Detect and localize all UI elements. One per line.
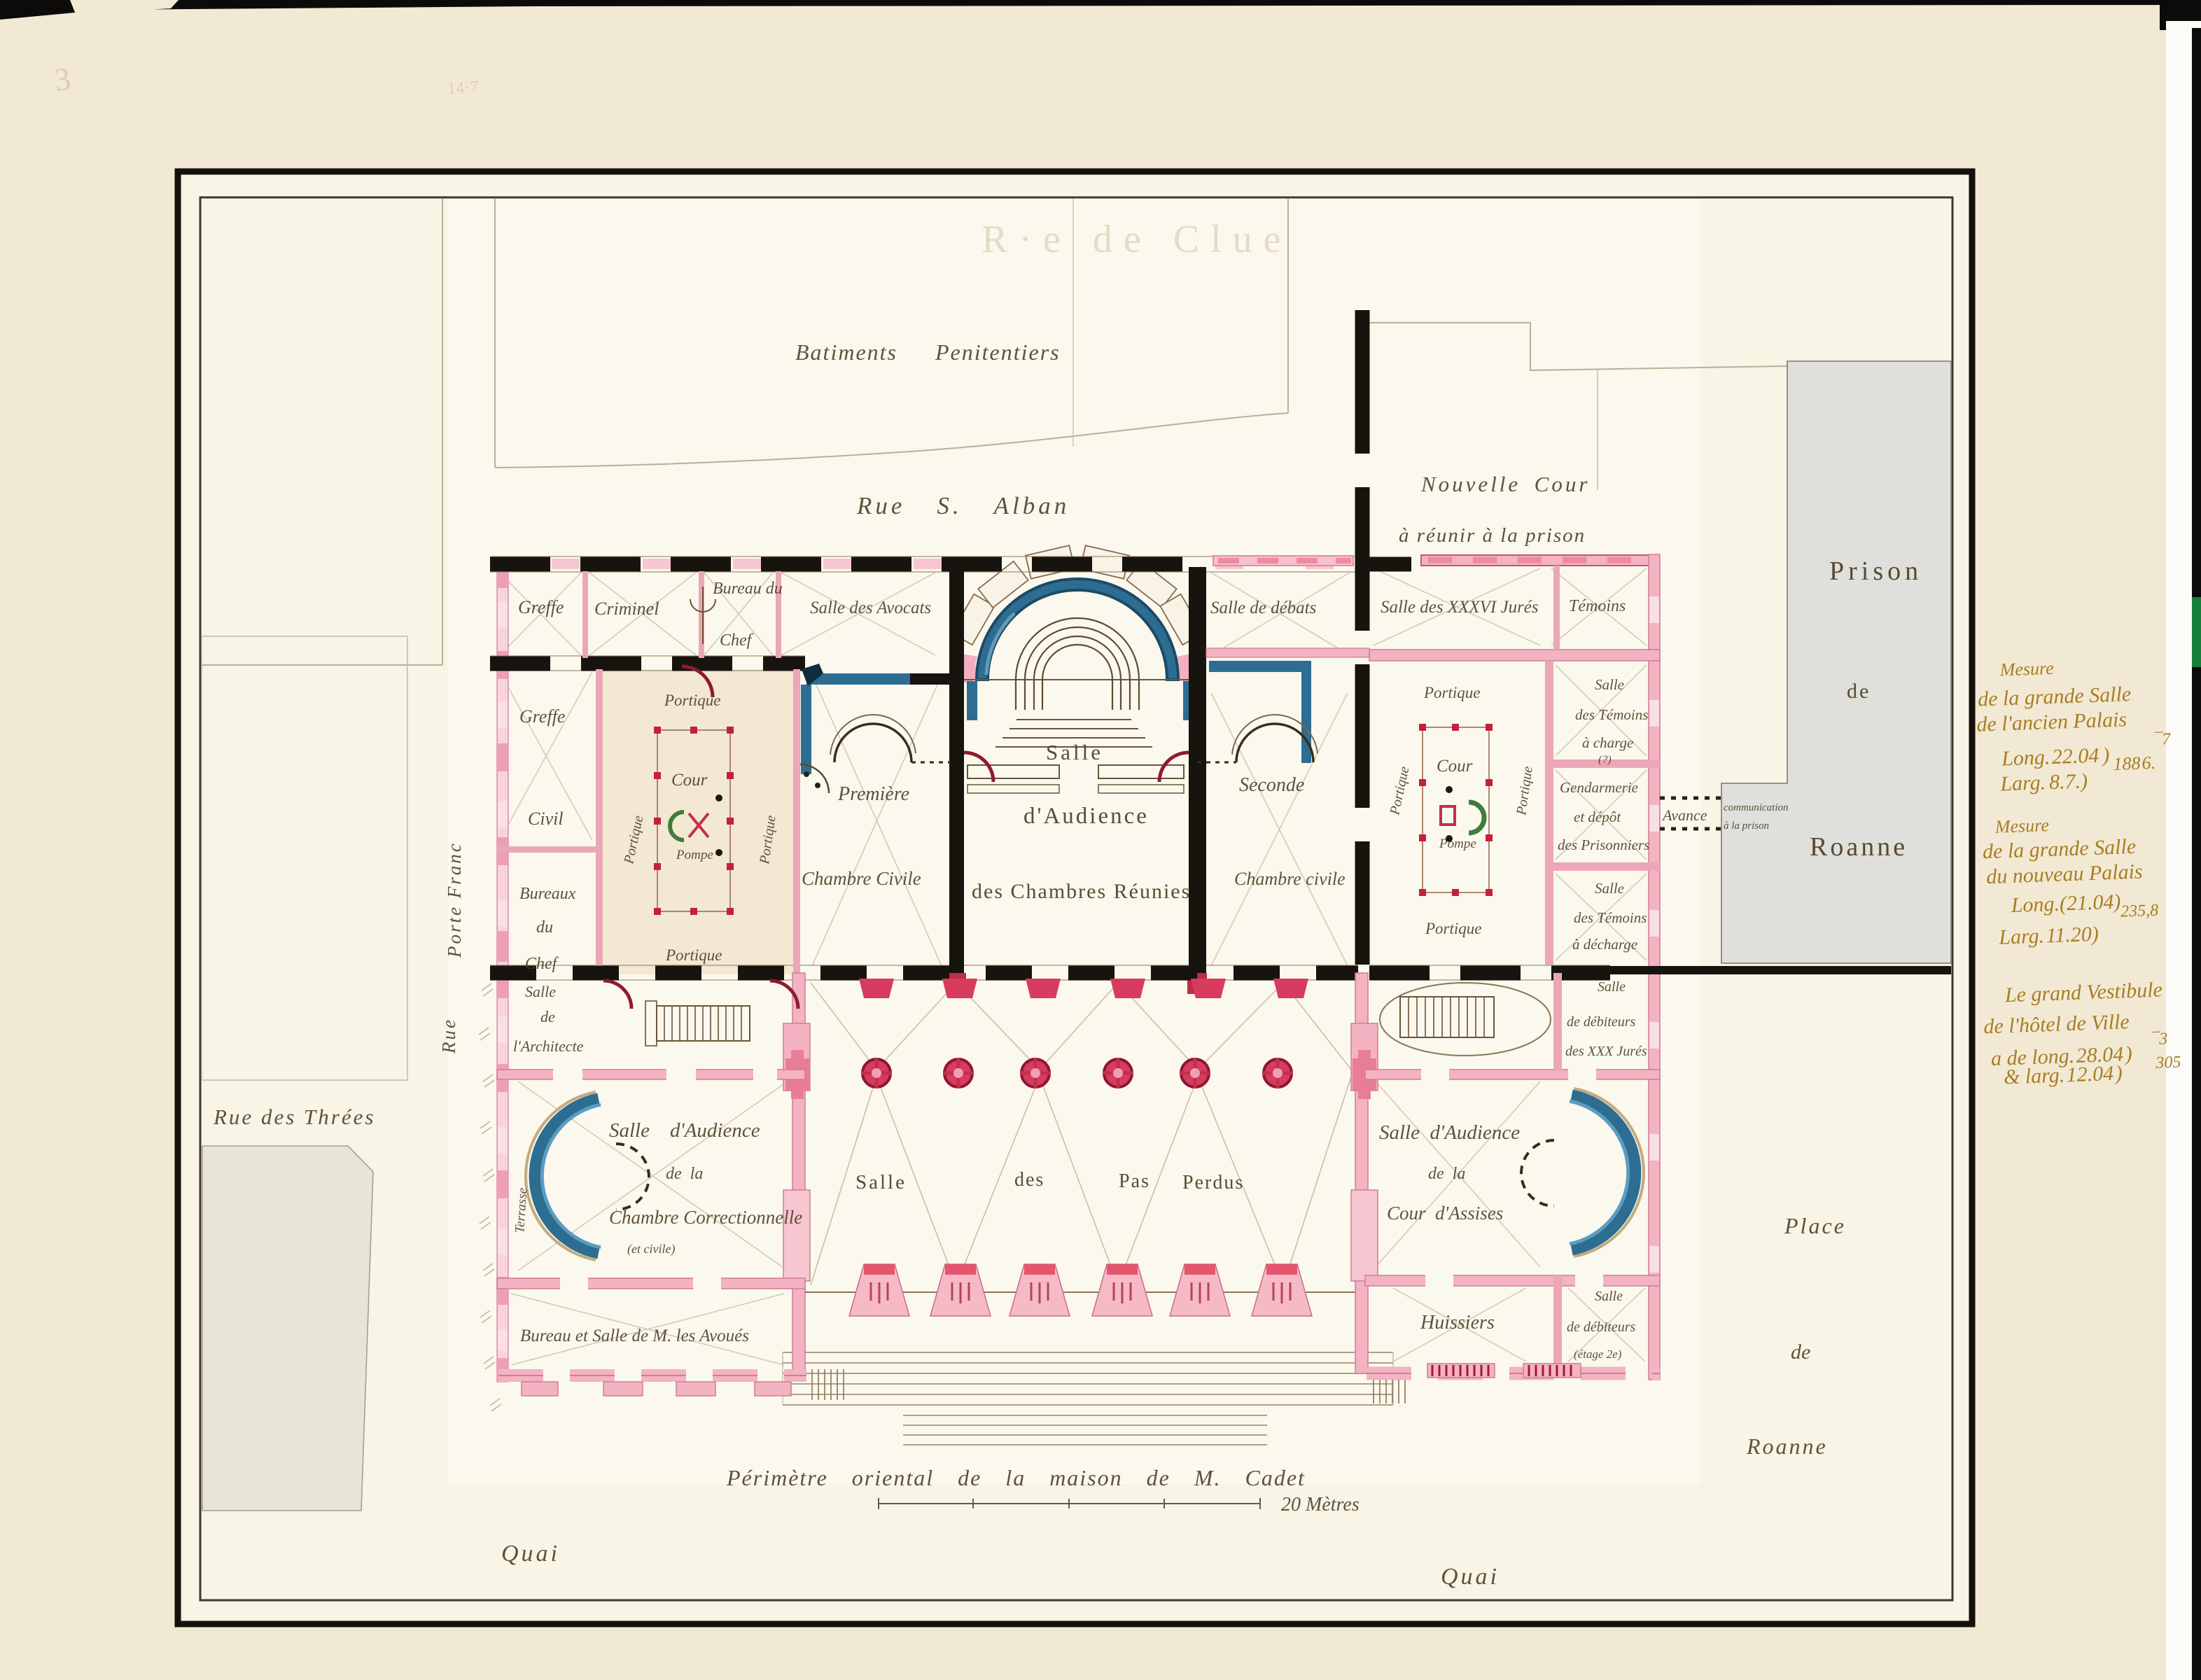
svg-text:Salle de débats: Salle de débats: [1210, 598, 1316, 617]
svg-text:188 6.: 188 6.: [2113, 752, 2156, 774]
svg-text:Seconde: Seconde: [1239, 774, 1304, 796]
svg-text:Première: Première: [837, 783, 909, 805]
svg-text:R·e de Clue: R·e de Clue: [981, 218, 1292, 261]
svg-text:Chef: Chef: [720, 631, 754, 650]
svg-text:Salle: Salle: [1046, 740, 1103, 764]
svg-text:¯7: ¯7: [2153, 730, 2172, 749]
svg-text:Cour d'Assises: Cour d'Assises: [1387, 1203, 1503, 1224]
svg-text:Rue des Thrées: Rue des Thrées: [213, 1105, 375, 1129]
svg-text:Cour: Cour: [671, 771, 708, 790]
svg-text:de: de: [1847, 680, 1871, 703]
svg-text:(?): (?): [1598, 754, 1612, 766]
svg-text:Salle: Salle: [525, 983, 556, 1000]
svg-text:et dépôt: et dépôt: [1574, 808, 1621, 825]
svg-text:Pas: Pas: [1119, 1170, 1150, 1192]
svg-text:de: de: [540, 1008, 555, 1025]
svg-text:Huissiers: Huissiers: [1420, 1312, 1495, 1333]
svg-text:Salle: Salle: [1595, 880, 1624, 897]
svg-text:Chambre civile: Chambre civile: [1234, 869, 1346, 889]
svg-text:Quai: Quai: [1441, 1564, 1500, 1590]
svg-text:Chambre Correctionnelle: Chambre Correctionnelle: [609, 1207, 802, 1228]
svg-text:Larg. 8.7.): Larg. 8.7.): [1999, 769, 2088, 795]
svg-text:(et civile): (et civile): [627, 1242, 675, 1256]
svg-text:l'Architecte: l'Architecte: [513, 1037, 584, 1055]
svg-text:Batiments Penitentiers: Batiments Penitentiers: [795, 339, 1061, 365]
svg-text:Bureau et Salle de M. les Avou: Bureau et Salle de M. les Avoués: [520, 1326, 749, 1345]
svg-text:Pompe: Pompe: [1439, 836, 1476, 851]
svg-text:Pompe: Pompe: [676, 848, 713, 862]
svg-text:Salle: Salle: [855, 1171, 907, 1193]
svg-text:des Chambres Réunies: des Chambres Réunies: [972, 880, 1191, 903]
svg-text:Long.(21.04): Long.(21.04): [2010, 890, 2121, 917]
svg-text:de: de: [1791, 1340, 1810, 1364]
svg-text:des: des: [1014, 1169, 1044, 1191]
svg-text:Salle d'Audience: Salle d'Audience: [1379, 1121, 1520, 1144]
svg-text:Salle des Avocats: Salle des Avocats: [810, 598, 931, 617]
svg-text:Greffe: Greffe: [519, 706, 565, 727]
svg-text:de la: de la: [666, 1165, 703, 1183]
svg-text:Chef: Chef: [525, 955, 559, 973]
svg-text:Roanne: Roanne: [1746, 1434, 1828, 1459]
svg-text:à réunir à la prison: à réunir à la prison: [1399, 524, 1586, 547]
svg-text:de débiteurs: de débiteurs: [1567, 1014, 1636, 1030]
svg-text:à charge: à charge: [1582, 734, 1633, 751]
svg-text:des Prisonniers: des Prisonniers: [1558, 836, 1649, 853]
svg-text:Nouvelle Cour: Nouvelle Cour: [1420, 472, 1590, 496]
svg-text:Roanne: Roanne: [1810, 832, 1908, 862]
svg-text:305: 305: [2155, 1053, 2181, 1072]
svg-text:Rue S. Alban: Rue S. Alban: [856, 492, 1070, 519]
svg-text:Greffe: Greffe: [518, 597, 564, 617]
svg-text:Prison: Prison: [1829, 556, 1922, 586]
svg-text:des Témoins: des Témoins: [1574, 909, 1647, 926]
svg-text:Criminel: Criminel: [594, 598, 659, 619]
svg-text:20 Mètres: 20 Mètres: [1281, 1494, 1360, 1515]
svg-text:Porte Franc: Porte Franc: [444, 841, 465, 958]
svg-text:Rue: Rue: [438, 1018, 459, 1054]
svg-text:communication: communication: [1724, 802, 1788, 813]
svg-text:Long. 22.04 ): Long. 22.04 ): [2001, 743, 2110, 770]
svg-text:de la: de la: [1428, 1165, 1465, 1183]
svg-text:Quai: Quai: [501, 1541, 560, 1567]
svg-text:Portique: Portique: [664, 692, 721, 709]
svg-text:Portique: Portique: [1423, 684, 1481, 701]
svg-text:d'Audience: d'Audience: [1023, 804, 1149, 829]
svg-text:(étage 2e): (étage 2e): [1574, 1347, 1622, 1361]
svg-text:Mesure: Mesure: [1994, 815, 2049, 837]
svg-text:Salle: Salle: [1598, 979, 1626, 995]
svg-text:Bureaux: Bureaux: [519, 885, 576, 903]
svg-text:Civil: Civil: [528, 808, 564, 829]
svg-text:Témoins: Témoins: [1569, 597, 1626, 615]
svg-text:& larg. 12.04 ): & larg. 12.04 ): [2003, 1062, 2123, 1089]
svg-text:Mesure: Mesure: [1999, 658, 2054, 680]
svg-text:Bureau du: Bureau du: [713, 580, 783, 598]
svg-text:Avance: Avance: [1661, 806, 1707, 824]
svg-text:Portique: Portique: [1425, 920, 1482, 937]
svg-text:à la prison: à la prison: [1724, 820, 1769, 832]
svg-text:Salle d'Audience: Salle d'Audience: [609, 1119, 760, 1142]
svg-text:Salle: Salle: [1595, 676, 1624, 693]
svg-text:des Témoins: des Témoins: [1575, 706, 1648, 723]
svg-text:Place: Place: [1784, 1213, 1846, 1238]
svg-text:Cour: Cour: [1437, 757, 1473, 776]
svg-text:Périmètre oriental de la maiso: Périmètre oriental de la maison de M. Ca…: [726, 1465, 1306, 1490]
svg-text:Gendarmerie: Gendarmerie: [1560, 779, 1638, 796]
svg-text:Portique: Portique: [665, 946, 722, 964]
svg-text:Salle des XXXVI Jurés: Salle des XXXVI Jurés: [1381, 598, 1539, 617]
svg-text:Larg. 11.20): Larg. 11.20): [1998, 923, 2099, 949]
svg-text:du: du: [536, 918, 553, 937]
svg-text:de débiteurs: de débiteurs: [1567, 1319, 1636, 1335]
svg-text:Salle: Salle: [1595, 1289, 1623, 1304]
svg-text:14·7: 14·7: [447, 78, 479, 99]
svg-text:à décharge: à décharge: [1572, 936, 1637, 953]
svg-text:235,8: 235,8: [2120, 902, 2159, 921]
svg-text:Chambre Civile: Chambre Civile: [802, 868, 921, 889]
svg-text:¯3: ¯3: [2151, 1030, 2168, 1049]
svg-text:des XXX Jurés: des XXX Jurés: [1565, 1044, 1647, 1059]
svg-text:Perdus: Perdus: [1182, 1172, 1244, 1193]
